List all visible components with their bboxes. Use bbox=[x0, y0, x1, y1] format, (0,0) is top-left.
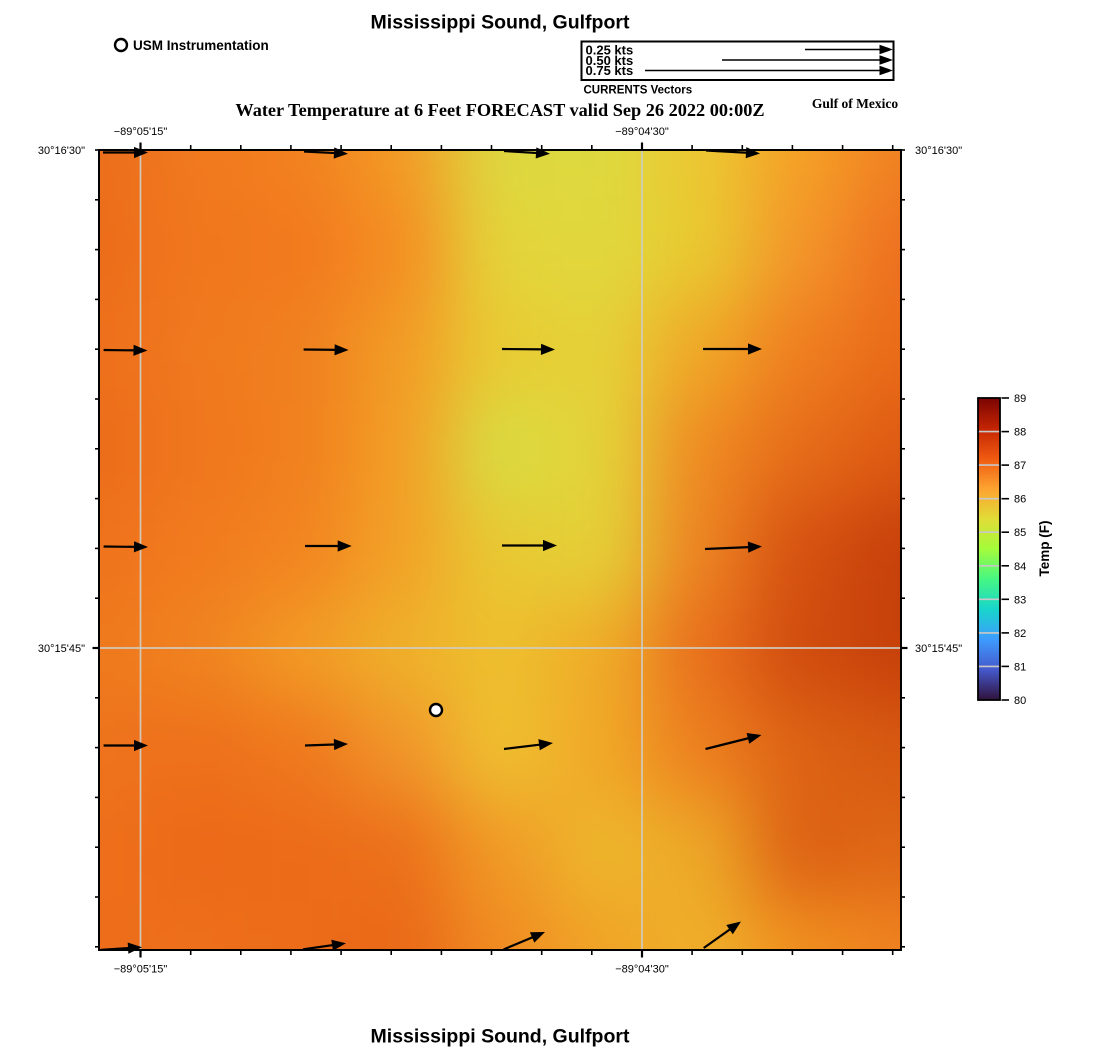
svg-text:81: 81 bbox=[1014, 661, 1026, 673]
svg-text:30°15'45": 30°15'45" bbox=[915, 643, 962, 655]
svg-text:−89°04'30": −89°04'30" bbox=[615, 964, 669, 976]
svg-text:82: 82 bbox=[1014, 628, 1026, 640]
svg-text:80: 80 bbox=[1014, 695, 1026, 707]
svg-text:88: 88 bbox=[1014, 427, 1026, 439]
svg-text:30°15'45": 30°15'45" bbox=[38, 643, 85, 655]
svg-text:Temp (F): Temp (F) bbox=[1037, 521, 1052, 577]
svg-text:83: 83 bbox=[1014, 594, 1026, 606]
svg-text:30°16'30": 30°16'30" bbox=[915, 145, 962, 157]
svg-text:30°16'30": 30°16'30" bbox=[38, 145, 85, 157]
svg-text:0.75 kts: 0.75 kts bbox=[586, 63, 634, 78]
svg-text:CURRENTS Vectors: CURRENTS Vectors bbox=[584, 85, 693, 97]
svg-text:89: 89 bbox=[1014, 393, 1026, 405]
svg-text:USM Instrumentation: USM Instrumentation bbox=[133, 38, 269, 53]
svg-text:84: 84 bbox=[1014, 561, 1026, 573]
svg-text:−89°05'15": −89°05'15" bbox=[114, 964, 168, 976]
svg-text:−89°04'30": −89°04'30" bbox=[615, 126, 669, 138]
svg-text:−89°05'15": −89°05'15" bbox=[114, 126, 168, 138]
svg-text:85: 85 bbox=[1014, 527, 1026, 539]
svg-text:Water Temperature at 6 Feet FO: Water Temperature at 6 Feet FORECAST val… bbox=[235, 100, 764, 120]
svg-text:86: 86 bbox=[1014, 494, 1026, 506]
svg-text:Mississippi Sound, Gulfport: Mississippi Sound, Gulfport bbox=[371, 1026, 630, 1048]
svg-text:87: 87 bbox=[1014, 460, 1026, 472]
svg-text:Gulf of Mexico: Gulf of Mexico bbox=[812, 96, 898, 111]
svg-text:Mississippi Sound, Gulfport: Mississippi Sound, Gulfport bbox=[371, 12, 630, 34]
